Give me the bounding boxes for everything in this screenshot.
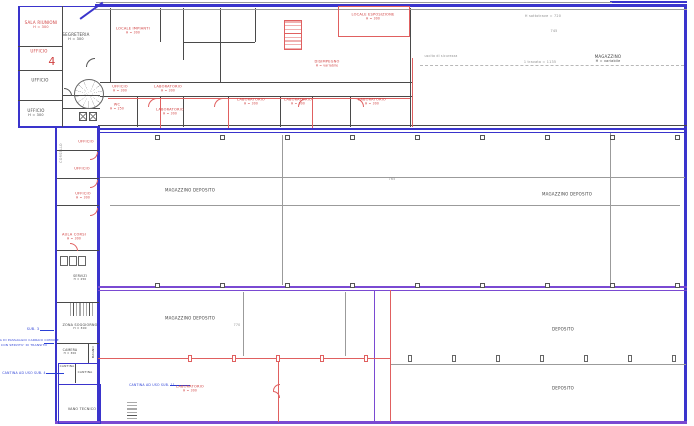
wall-segment — [610, 1, 687, 3]
wall-segment — [183, 42, 255, 43]
wall-segment — [390, 364, 686, 365]
structural-column — [675, 283, 680, 288]
label-laboratorio-e: LABORATORIOH = 300 — [358, 98, 386, 107]
structural-column — [350, 283, 355, 288]
wall-segment — [88, 343, 89, 363]
wall-segment — [228, 98, 229, 128]
wall-segment — [55, 128, 57, 423]
structural-column — [545, 283, 550, 288]
label-nota-area-2: CON SERVITU' DI TRANSITO — [1, 344, 47, 348]
label-height-note: H = 300 — [358, 102, 386, 106]
vano-tecnico-outline — [58, 384, 101, 424]
wall-segment — [255, 8, 256, 42]
wc-stall — [60, 256, 68, 266]
wc-stall — [69, 256, 77, 266]
label-text: CORSELLO — [59, 143, 63, 163]
label-uscita-sicurezza: uscita di sicurezza — [424, 54, 457, 58]
label-ufficio-f: UFFICIO — [74, 167, 90, 172]
label-text: 745 — [550, 29, 557, 33]
label-camera: CAMERAH = 300 — [63, 348, 78, 356]
structural-column — [155, 135, 160, 140]
wall-segment — [684, 4, 687, 423]
structural-column — [675, 135, 680, 140]
wall-segment — [57, 150, 99, 151]
stair-bottom — [127, 400, 137, 419]
label-text: CANTINA — [78, 371, 93, 375]
door-arc — [86, 58, 95, 67]
wall-segment — [55, 421, 687, 424]
label-height-note: H = 250 — [110, 107, 124, 111]
label-laboratorio-c: LABORATORIOH = 300 — [237, 98, 265, 107]
structural-column — [540, 355, 544, 362]
label-height-note: H = 300 — [27, 113, 44, 117]
label-dim-sottotrave: H sottotrave = 720 — [525, 14, 561, 18]
label-ufficio-c: UFFICIOH = 300 — [27, 108, 44, 118]
wall-segment — [62, 108, 100, 109]
wall-segment — [18, 6, 98, 7]
structural-column — [188, 355, 192, 362]
wall-segment — [98, 128, 687, 130]
wall-segment — [98, 290, 687, 291]
wall-segment — [57, 178, 99, 179]
label-nota-sub11: CANTINA AD USO SUB. 11 — [129, 383, 175, 387]
label-sala-riunioni: SALA RIUNIONIH = 300 — [25, 20, 58, 30]
stair-left-wing — [70, 303, 94, 316]
label-magazzino: MAGAZZINOH = variabile — [595, 54, 622, 64]
elevator-shaft — [79, 112, 87, 121]
label-text: CANTINA AD USO SUB. 11 — [129, 383, 175, 387]
label-text: 765 — [388, 177, 395, 181]
wall-segment — [410, 8, 411, 127]
door-arc — [148, 98, 157, 107]
label-height-note: H = 300 — [176, 389, 204, 393]
wall-segment — [18, 126, 100, 128]
wall-segment — [62, 6, 63, 127]
wall-segment — [100, 82, 412, 83]
label-laboratorio-d: LABORATORIOH = 300 — [284, 98, 312, 107]
truss-axis-dashed-line — [420, 65, 684, 66]
label-text: CANTINA AD USO SUB. 4 — [2, 371, 46, 375]
label-locale-esposizione: LOCALE ESPOSIZIONEH = 300 — [352, 13, 395, 22]
structural-column — [232, 355, 236, 362]
structural-column — [672, 355, 676, 362]
label-height-note: H = variabile — [314, 64, 339, 68]
structural-column — [350, 135, 355, 140]
label-text: SUB. 3 — [27, 327, 39, 331]
label-text: UFFICIO — [78, 140, 94, 145]
structural-column — [285, 135, 290, 140]
wall-segment — [243, 292, 244, 356]
wall-segment — [137, 96, 138, 127]
wall-segment — [18, 6, 20, 128]
wc-stall — [78, 256, 86, 266]
structural-column — [610, 135, 615, 140]
label-ufficio-b: UFFICIO — [31, 77, 48, 82]
spiral-stair — [74, 79, 104, 109]
structural-column — [155, 283, 160, 288]
label-height-note: H = 300 — [62, 237, 86, 241]
label-ufficio-a: UFFICIO — [30, 48, 47, 53]
label-bagno: BAGNO — [92, 346, 96, 358]
label-height-note: H = 300 — [25, 25, 58, 29]
structural-column — [220, 135, 225, 140]
wall-segment — [57, 343, 99, 344]
door-arc — [273, 391, 280, 398]
label-dim-770: 770 — [234, 323, 241, 327]
label-height-note: H = 300 — [62, 37, 89, 41]
label-height-note: H = 300 — [63, 352, 78, 356]
structural-column — [320, 355, 324, 362]
label-ufficio-e: UFFICIO — [78, 140, 94, 145]
label-vano-tecnico: VANO TECNICO — [68, 407, 96, 411]
label-disimpegno: DISIMPEGNOH = variabile — [314, 60, 339, 69]
structural-column — [496, 355, 500, 362]
structural-column — [480, 135, 485, 140]
label-text: VANO TECNICO — [68, 407, 96, 411]
structural-column — [220, 283, 225, 288]
label-text: UFFICIO — [30, 48, 47, 53]
structural-column — [610, 283, 615, 288]
door-arc — [64, 88, 72, 96]
label-sub-3: SUB. 3 — [27, 327, 39, 331]
label-height-note: H = 300 — [156, 112, 184, 116]
wall-segment — [96, 2, 612, 3]
structural-column — [408, 355, 412, 362]
label-height-note: H = 300 — [352, 17, 395, 21]
label-text: MAGAZZINO DEPOSITO — [165, 315, 215, 320]
label-zona-soggiorno: ZONA SOGGIORNOH = 300 — [62, 323, 97, 331]
label-height-note: H = 300 — [154, 89, 182, 93]
door-arc — [214, 98, 223, 107]
label-marker-4: 4 — [48, 55, 55, 69]
wall-segment — [160, 8, 161, 42]
wall-segment — [345, 292, 346, 356]
structural-column — [415, 135, 420, 140]
wall-segment — [412, 58, 413, 127]
structural-column — [545, 135, 550, 140]
wall-segment — [312, 98, 313, 128]
label-cantina-1: CANTINA — [60, 365, 75, 369]
wall-segment — [282, 135, 283, 285]
label-text: MAGAZZINO DEPOSITO — [165, 187, 215, 192]
label-deposito-1: DEPOSITO — [552, 326, 574, 331]
wall-segment — [220, 8, 221, 82]
door-arc — [273, 384, 280, 391]
red-room-outline — [338, 6, 410, 37]
label-height-note: H = 300 — [112, 89, 128, 93]
wall-segment — [18, 70, 62, 71]
wall-segment — [110, 205, 680, 206]
wall-segment — [18, 46, 62, 47]
label-laboratorio-a: LABORATORIOH = 300 — [154, 85, 182, 94]
fire-escape-stair — [284, 20, 302, 50]
wall-segment — [350, 96, 351, 127]
wall-segment — [390, 290, 391, 422]
wall-segment — [98, 358, 391, 359]
label-height-note: H = 300 — [75, 196, 91, 200]
label-deposito-2: DEPOSITO — [552, 385, 574, 390]
label-laboratorio-b: LABORATORIOH = 300 — [156, 108, 184, 117]
label-height-note: H = 300 — [116, 31, 150, 35]
structural-column — [628, 355, 632, 362]
wall-segment — [40, 330, 54, 331]
label-text: UFFICIO — [74, 167, 90, 172]
label-dim-745: 745 — [550, 29, 557, 33]
service-shaft — [89, 112, 97, 121]
structural-column — [480, 283, 485, 288]
label-dim-765: 765 — [388, 177, 395, 181]
floor-plan-canvas: SALA RIUNIONIH = 300SEGRETERIAH = 300UFF… — [0, 0, 694, 426]
label-ufficio-d: UFFICIOH = 300 — [112, 85, 128, 94]
label-text: 1 travata = 1135 — [524, 60, 556, 64]
label-height-note: H = variabile — [595, 59, 622, 63]
structural-column — [452, 355, 456, 362]
label-height-note: H = 300 — [284, 102, 312, 106]
structural-column — [415, 283, 420, 288]
label-text: 4 — [48, 55, 55, 69]
label-text: DEPOSITO — [552, 326, 574, 331]
label-locale-impianti: LOCALE IMPIANTIH = 300 — [116, 27, 150, 36]
wall-segment — [98, 132, 687, 133]
label-text: MAGAZZINO DEPOSITO — [542, 191, 592, 196]
label-text: DEPOSITO — [552, 385, 574, 390]
label-dim-travata: 1 travata = 1135 — [524, 60, 556, 64]
wall-segment — [98, 286, 687, 288]
label-height-note: H = 300 — [62, 327, 97, 331]
structural-column — [285, 283, 290, 288]
label-text: BAGNO — [92, 346, 96, 358]
wall-segment — [280, 96, 281, 127]
label-corsello: CORSELLO — [59, 143, 63, 163]
label-nota-sub4: CANTINA AD USO SUB. 4 — [2, 371, 46, 375]
structural-column — [276, 355, 280, 362]
wall-segment — [110, 8, 111, 82]
label-height-note: H = 250 — [73, 278, 87, 282]
wall-segment — [18, 100, 62, 101]
label-magazzino-deposito-2: MAGAZZINO DEPOSITO — [542, 191, 592, 196]
label-text: uscita di sicurezza — [424, 54, 457, 58]
label-magazzino-deposito-1: MAGAZZINO DEPOSITO — [165, 187, 215, 192]
label-magazzino-deposito-3: MAGAZZINO DEPOSITO — [165, 315, 215, 320]
label-wc: WCH = 250 — [110, 103, 124, 112]
label-text: CANTINA — [60, 365, 75, 369]
label-laboratorio-f: LABORATORIOH = 300 — [176, 385, 204, 394]
wall-segment — [374, 290, 375, 422]
label-cantina-2: CANTINA — [78, 371, 93, 375]
door-arc — [70, 243, 78, 251]
label-text: UFFICIO — [31, 77, 48, 82]
structural-column — [364, 355, 368, 362]
structural-column — [584, 355, 588, 362]
label-text: CON SERVITU' DI TRANSITO — [1, 344, 47, 348]
label-segreteria: SEGRETERIAH = 300 — [62, 32, 89, 42]
wall-segment — [183, 8, 184, 60]
wall-segment — [57, 250, 99, 251]
label-text: H sottotrave = 720 — [525, 14, 561, 18]
label-height-note: H = 300 — [237, 102, 265, 106]
wall-segment — [57, 205, 99, 206]
label-text: 770 — [234, 323, 241, 327]
wall-segment — [98, 125, 687, 126]
label-aula-corsi: AULA CORSIH = 300 — [62, 233, 86, 242]
label-ufficio-g: UFFICIOH = 300 — [75, 192, 91, 201]
diagonal-reference-line — [80, 2, 104, 20]
label-servizi: SERVIZIH = 250 — [73, 274, 87, 282]
wall-segment — [610, 133, 611, 286]
